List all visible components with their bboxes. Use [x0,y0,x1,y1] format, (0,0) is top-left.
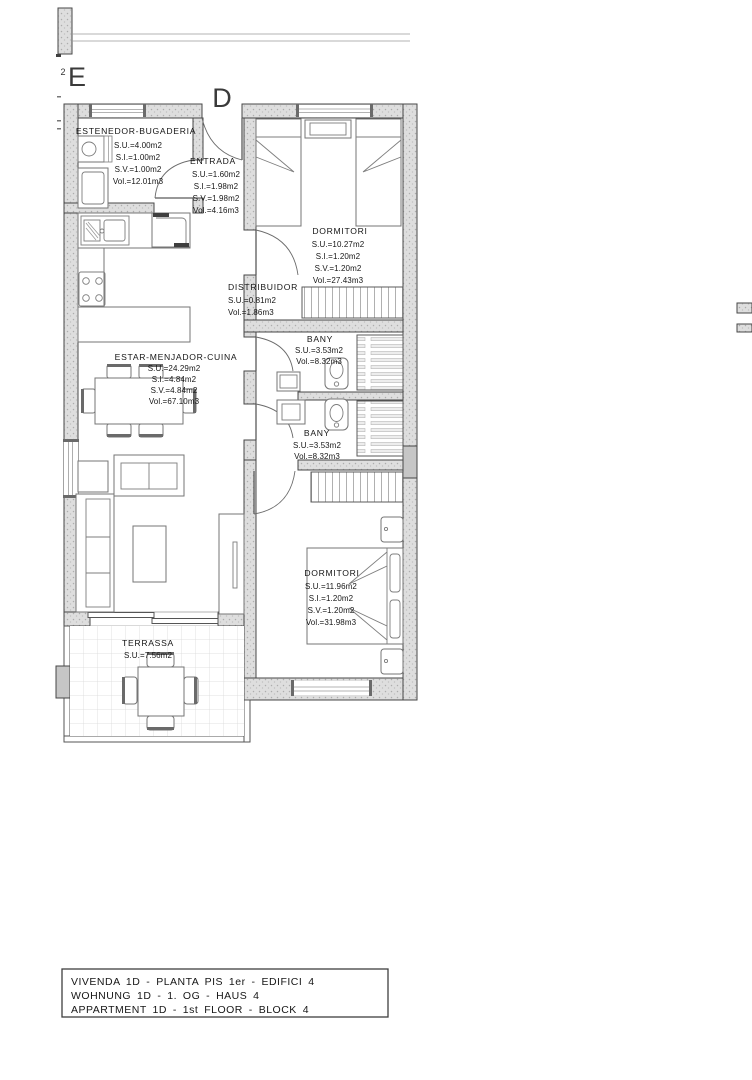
column [58,8,72,54]
tv-cabinet-icon [219,514,244,614]
wardrobe-icon [302,287,403,318]
kitchen-fixtures [78,213,190,342]
wall-segment [244,118,256,230]
room-su: S.U.=10.27m2 [312,240,365,249]
window [296,104,373,117]
title-line-english: APPARTMENT 1D - 1st FLOOR - BLOCK 4 [71,1004,309,1016]
room-su: S.U.=24.29m2 [148,364,201,373]
washbasin-icon [277,400,305,424]
room-vol: Vol.=31.98m3 [306,618,357,627]
washbasin-icon [277,372,300,391]
wall-segment [244,440,256,460]
entrance-door [202,118,242,160]
wall-segment [244,332,256,337]
room-name: ESTENEDOR-BUGADERIA [76,126,196,136]
nightstand-icon [305,120,351,138]
room-su: S.U.=11.96m2 [305,582,357,591]
wall-segment [193,118,203,160]
room-su: S.U.=3.53m2 [295,346,343,355]
room-vol: Vol.=8.32m3 [296,357,342,366]
room-su: S.U.=4.00m2 [114,141,162,150]
bath1-door [256,337,293,371]
chair-icon [122,677,137,704]
armchair-icon [78,461,108,492]
window [63,439,79,498]
room-si: S.I.=4.84m2 [152,375,197,384]
laundry-fixtures [78,136,112,208]
fridge-icon [152,213,190,247]
wall-segment [64,612,90,626]
toilet-icon [325,399,348,430]
room-name: DORMITORI [312,226,367,236]
counter-peninsula [78,307,190,342]
title-line-german: WOHNUNG 1D - 1. OG - HAUS 4 [71,990,260,1002]
coffee-table-icon [133,526,166,582]
room-si: S.I.=1.00m2 [116,153,161,162]
room-label-dormitori2: DORMITORI S.U.=11.96m2 S.I.=1.20m2 S.V.=… [304,568,359,627]
wall-segment [403,104,417,700]
chair-icon [184,677,198,704]
neighbor-wall-fragment [737,324,752,332]
sliding-door [88,612,218,626]
grid-letter-d: D [212,83,232,113]
window [291,680,372,696]
terrace-parapet [244,700,250,742]
terrace-parapet [64,736,250,742]
room-name: BANY [307,334,333,344]
floor-plan-drawing: E D 2 [0,0,752,1080]
room-vol: Vol.=27.43m3 [313,276,364,285]
room-name: DISTRIBUIDOR [228,282,298,292]
room-name: DORMITORI [304,568,359,578]
room-su: S.U.=3.53m2 [293,441,341,450]
chair-icon [107,424,131,437]
room-label-bany1: BANY S.U.=3.53m2 Vol.=8.32m3 [295,334,343,366]
grid-number-2: 2 [60,67,65,77]
room-sv: S.V.=1.00m2 [115,165,162,174]
loveseat-icon [114,455,184,496]
room-name: BANY [304,428,330,438]
room-su: S.U.=0.81m2 [228,296,276,305]
dimension-tick [57,128,61,130]
room-sv: S.V.=1.98m2 [193,194,240,203]
nightstand-icon [381,649,403,674]
dimension-tick [57,96,61,98]
room-su: S.U.=1.60m2 [192,170,240,179]
wall-segment [244,320,417,332]
sofa-icon [76,494,114,612]
wall-segment [298,460,417,470]
chair-icon [139,424,163,437]
title-block: VIVENDA 1D - PLANTA PIS 1er - EDIFICI 4 … [62,969,388,1017]
floor-plan-sheet: E D 2 [0,0,752,1080]
laundry-sink-icon [78,168,108,208]
chair-icon [147,716,174,730]
grid-letter-e: E [68,62,86,92]
room-sv: S.V.=4.84m2 [151,386,198,395]
room-si: S.I.=1.98m2 [194,182,239,191]
room-su: S.U.=7.56m2 [124,651,172,660]
wall-segment [244,371,256,404]
room-vol: Vol.=4.16m3 [193,206,239,215]
room-si: S.I.=1.20m2 [316,252,361,261]
room-name: TERRASSA [122,638,174,648]
shower-icon [357,401,403,456]
room-vol: Vol.=12.01m3 [113,177,164,186]
room-name: ENTRADA [190,156,236,166]
title-line-catalan: VIVENDA 1D - PLANTA PIS 1er - EDIFICI 4 [71,976,315,988]
terrace-table-icon [138,667,184,716]
neighbor-wall-fragment [737,303,752,313]
room-label-entrada: ENTRADA S.U.=1.60m2 S.I.=1.98m2 S.V.=1.9… [190,156,240,215]
boundary-lines [72,34,410,41]
single-bed-icon [356,119,401,226]
room-vol: Vol.=8.32m3 [294,452,340,461]
bedroom2-door [254,471,295,514]
room-vol: Vol.=1.86m3 [228,308,274,317]
chair-icon [107,364,131,378]
column [56,666,70,698]
single-bed-icon [256,119,301,226]
living-furniture [76,455,244,614]
room-si: S.I.=1.20m2 [309,594,354,603]
dimension-tick [57,120,61,122]
window [89,104,146,117]
chair-icon [81,389,95,413]
nightstand-icon [381,517,403,542]
room-sv: S.V.=1.20m2 [315,264,362,273]
washing-machine-icon [78,136,112,162]
wardrobe-icon [311,472,403,502]
room-label-distribuidor: DISTRIBUIDOR S.U.=0.81m2 Vol.=1.86m3 [228,282,298,317]
wall-segment [298,392,417,400]
room-label-bany2: BANY S.U.=3.53m2 Vol.=8.32m3 [293,428,341,461]
column-tick [56,54,61,57]
shower-icon [357,335,403,390]
bedroom1-door [256,230,298,275]
room-sv: S.V.=1.20m2 [308,606,355,615]
column [403,446,417,478]
room-vol: Vol.=67.10m3 [149,397,200,406]
room-label-dormitori1: DORMITORI S.U.=10.27m2 S.I.=1.20m2 S.V.=… [312,226,368,285]
room-name: ESTAR-MENJADOR-CUINA [115,352,238,362]
